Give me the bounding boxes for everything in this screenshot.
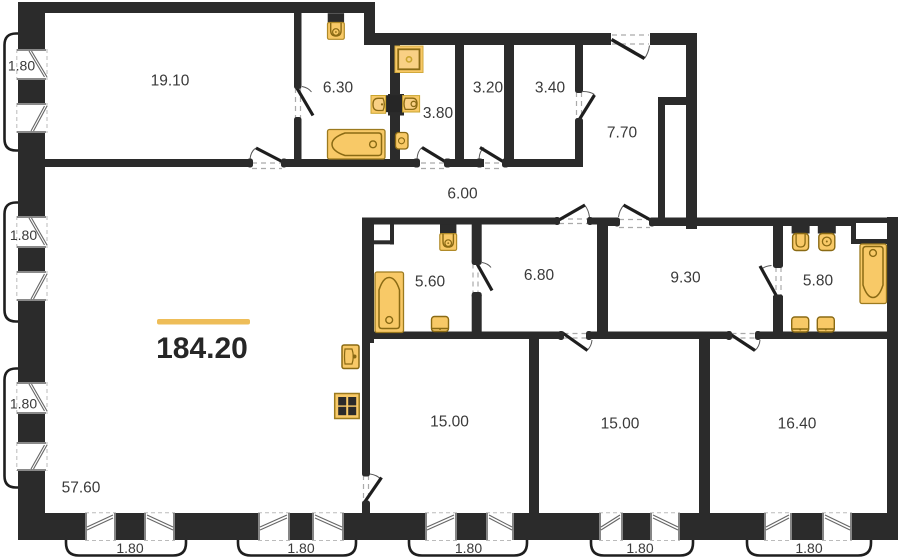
svg-text:1.80: 1.80 [455,540,482,556]
svg-text:1.80: 1.80 [795,540,822,556]
svg-text:15.00: 15.00 [430,414,469,431]
svg-text:3.20: 3.20 [473,80,504,97]
svg-text:6.30: 6.30 [323,80,354,97]
svg-text:6.00: 6.00 [447,186,478,203]
svg-text:1.80: 1.80 [116,540,143,556]
svg-text:9.30: 9.30 [670,270,701,287]
svg-text:184.20: 184.20 [156,332,248,365]
svg-text:16.40: 16.40 [778,416,817,433]
svg-text:1.80: 1.80 [8,58,35,74]
svg-text:1.80: 1.80 [287,540,314,556]
svg-text:6.80: 6.80 [524,267,555,284]
svg-text:3.40: 3.40 [535,80,566,97]
svg-text:3.80: 3.80 [423,105,454,122]
svg-text:57.60: 57.60 [62,480,101,497]
svg-text:7.70: 7.70 [607,125,638,142]
svg-text:19.10: 19.10 [151,73,190,90]
svg-text:1.80: 1.80 [626,540,653,556]
svg-text:5.80: 5.80 [803,273,834,290]
svg-text:1.80: 1.80 [10,396,37,412]
svg-text:1.80: 1.80 [10,227,37,243]
svg-text:15.00: 15.00 [601,416,640,433]
svg-text:5.60: 5.60 [415,274,446,291]
